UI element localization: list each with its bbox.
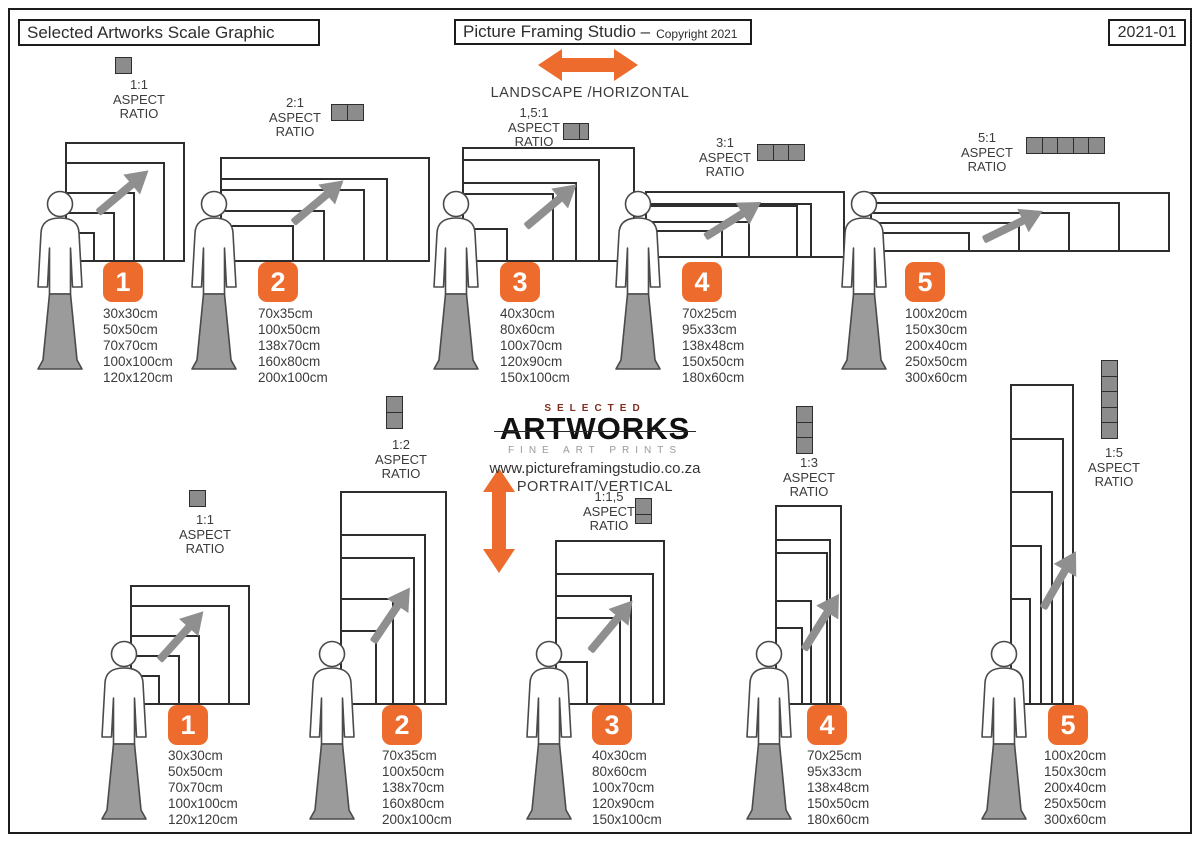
aspect-ratio-label: 5:1ASPECTRATIO [948,131,1026,175]
size-item: 100x70cm [592,780,662,796]
aspect-ratio-icon [1101,360,1118,439]
aspect-ratio-label-line: 1:2 [362,438,440,453]
size-item: 100x20cm [905,306,967,322]
size-item: 30x30cm [103,306,173,322]
size-item: 200x100cm [258,370,328,386]
size-item: 40x30cm [500,306,570,322]
size-item: 80x60cm [592,764,662,780]
size-item: 150x50cm [807,796,869,812]
aspect-ratio-label-line: RATIO [362,467,440,482]
aspect-ratio-label-line: 1:1 [100,78,178,93]
aspect-ratio-label-line: ASPECT [570,505,648,520]
size-item: 120x120cm [103,370,173,386]
size-item: 150x30cm [905,322,967,338]
aspect-ratio-label-line: ASPECT [100,93,178,108]
person-figure [300,640,364,832]
size-item: 30x30cm [168,748,238,764]
number-badge: 3 [592,705,632,745]
aspect-ratio-label-line: 1:1 [166,513,244,528]
aspect-ratio-label-line: ASPECT [256,111,334,126]
aspect-ratio-label: 1:3ASPECTRATIO [770,456,848,500]
copyright-text: Copyright 2021 [656,27,737,41]
size-item: 100x20cm [1044,748,1106,764]
size-item: 70x25cm [807,748,869,764]
aspect-unit-square [1101,407,1118,424]
size-item: 138x70cm [382,780,452,796]
aspect-unit-square [1073,137,1090,154]
aspect-ratio-label-line: RATIO [686,165,764,180]
size-item: 120x120cm [168,812,238,828]
aspect-ratio-label: 1:1ASPECTRATIO [166,513,244,557]
aspect-ratio-icon [1026,137,1105,154]
aspect-ratio-label-line: RATIO [570,519,648,534]
zoom-direction-arrow-icon [88,160,160,222]
aspect-ratio-label: 2:1ASPECTRATIO [256,96,334,140]
size-item: 70x35cm [258,306,328,322]
size-list: 70x25cm95x33cm138x48cm150x50cm180x60cm [682,306,744,386]
logo-subtitle-text: FINE ART PRINTS [470,445,720,456]
size-item: 160x80cm [258,354,328,370]
zoom-direction-arrow-icon [283,170,355,232]
size-list: 30x30cm50x50cm70x70cm100x100cm120x120cm [103,306,173,386]
size-item: 138x48cm [807,780,869,796]
person-figure [28,190,92,382]
number-badge: 5 [1048,705,1088,745]
issue-number-text: 2021-01 [1118,24,1177,42]
size-item: 200x100cm [382,812,452,828]
size-item: 250x50cm [1044,796,1106,812]
person-figure [606,190,670,382]
aspect-ratio-label-line: ASPECT [1075,461,1153,476]
aspect-unit-square [189,490,206,507]
aspect-ratio-label: 3:1ASPECTRATIO [686,136,764,180]
aspect-ratio-label-line: RATIO [100,107,178,122]
page-title-text: Selected Artworks Scale Graphic [27,23,275,43]
aspect-ratio-label-line: RATIO [256,125,334,140]
aspect-unit-square [1101,391,1118,408]
person-figure [424,190,488,382]
aspect-unit-square [347,104,364,121]
size-item: 100x100cm [168,796,238,812]
number-badge: 2 [258,262,298,302]
size-list: 70x35cm100x50cm138x70cm160x80cm200x100cm [258,306,328,386]
size-list: 70x25cm95x33cm138x48cm150x50cm180x60cm [807,748,869,828]
zoom-direction-arrow-icon [142,599,222,670]
aspect-unit-square [796,437,813,454]
aspect-ratio-label-line: RATIO [495,135,573,150]
logo-artworks-text: ARTWORKS [500,414,691,444]
person-figure [517,640,581,832]
size-item: 50x50cm [103,322,173,338]
size-item: 150x100cm [500,370,570,386]
size-item: 70x25cm [682,306,744,322]
number-badge: 1 [103,262,143,302]
aspect-unit-square [1057,137,1074,154]
size-item: 100x70cm [500,338,570,354]
logo-block: SELECTED ARTWORKS FINE ART PRINTS www.pi… [470,403,720,495]
aspect-ratio-label: 1:1ASPECTRATIO [100,78,178,122]
person-figure [92,640,156,832]
studio-title-text: Picture Framing Studio – [463,22,650,42]
size-item: 200x40cm [1044,780,1106,796]
aspect-unit-square [788,144,805,161]
size-item: 50x50cm [168,764,238,780]
size-item: 150x30cm [1044,764,1106,780]
size-item: 200x40cm [905,338,967,354]
size-item: 150x100cm [592,812,662,828]
horizontal-double-arrow-icon [538,48,638,82]
aspect-unit-square [386,412,403,429]
aspect-ratio-label-line: ASPECT [948,146,1026,161]
aspect-ratio-label-line: 1:3 [770,456,848,471]
size-item: 180x60cm [682,370,744,386]
number-badge: 4 [807,705,847,745]
size-list: 40x30cm80x60cm100x70cm120x90cm150x100cm [592,748,662,828]
aspect-half-square [579,123,589,140]
zoom-direction-arrow-icon [571,588,653,662]
logo-strike-line [494,431,697,433]
aspect-ratio-label-line: 1,5:1 [495,106,573,121]
aspect-ratio-label-line: RATIO [166,542,244,557]
size-item: 138x48cm [682,338,744,354]
number-badge: 2 [382,705,422,745]
aspect-unit-square [1026,137,1043,154]
landscape-section-label: LANDSCAPE /HORIZONTAL [470,85,710,101]
size-item: 70x70cm [103,338,173,354]
size-item: 150x50cm [682,354,744,370]
size-list: 100x20cm150x30cm200x40cm250x50cm300x60cm [1044,748,1106,828]
aspect-ratio-icon [115,57,132,74]
size-item: 160x80cm [382,796,452,812]
scale-graphic-canvas: Selected Artworks Scale Graphic Picture … [0,0,1200,842]
aspect-ratio-label-line: ASPECT [770,471,848,486]
size-item: 300x60cm [1044,812,1106,828]
size-item: 70x70cm [168,780,238,796]
aspect-ratio-label-line: 5:1 [948,131,1026,146]
person-figure [972,640,1036,832]
aspect-unit-square [1101,360,1118,377]
person-figure [737,640,801,832]
size-item: 95x33cm [682,322,744,338]
number-badge: 1 [168,705,208,745]
portrait-section-label: PORTRAIT/VERTICAL [470,479,720,495]
aspect-ratio-label-line: 1:5 [1075,446,1153,461]
size-list: 30x30cm50x50cm70x70cm100x100cm120x120cm [168,748,238,828]
size-item: 80x60cm [500,322,570,338]
size-item: 100x50cm [258,322,328,338]
aspect-unit-square [1042,137,1059,154]
person-figure [832,190,896,382]
size-item: 100x100cm [103,354,173,370]
aspect-ratio-label-line: RATIO [770,485,848,500]
number-badge: 4 [682,262,722,302]
aspect-ratio-label: 1:2ASPECTRATIO [362,438,440,482]
size-item: 40x30cm [592,748,662,764]
person-figure [182,190,246,382]
aspect-unit-square [1101,376,1118,393]
aspect-ratio-label-line: RATIO [1075,475,1153,490]
size-list: 40x30cm80x60cm100x70cm120x90cm150x100cm [500,306,570,386]
size-item: 120x90cm [592,796,662,812]
size-item: 100x50cm [382,764,452,780]
aspect-ratio-label-line: ASPECT [686,151,764,166]
number-badge: 3 [500,262,540,302]
aspect-ratio-icon [331,104,364,121]
size-item: 70x35cm [382,748,452,764]
number-badge: 5 [905,262,945,302]
size-item: 180x60cm [807,812,869,828]
aspect-ratio-label: 1:1,5ASPECTRATIO [570,490,648,534]
aspect-unit-square [1101,422,1118,439]
aspect-ratio-label-line: RATIO [948,160,1026,175]
size-item: 250x50cm [905,354,967,370]
aspect-ratio-label: 1,5:1ASPECTRATIO [495,106,573,150]
aspect-ratio-label-line: 3:1 [686,136,764,151]
zoom-direction-arrow-icon [694,183,774,254]
aspect-unit-square [115,57,132,74]
aspect-unit-square [773,144,790,161]
zoom-direction-arrow-icon [516,174,588,236]
aspect-ratio-icon [386,396,403,429]
aspect-unit-square [796,422,813,439]
size-item: 95x33cm [807,764,869,780]
aspect-unit-square [386,396,403,413]
studio-title: Picture Framing Studio – Copyright 2021 [454,19,752,45]
size-list: 100x20cm150x30cm200x40cm250x50cm300x60cm [905,306,967,386]
aspect-unit-square [1088,137,1105,154]
issue-number: 2021-01 [1108,19,1186,46]
aspect-ratio-label: 1:5ASPECTRATIO [1075,446,1153,490]
aspect-unit-square [796,406,813,423]
aspect-ratio-icon [757,144,805,161]
page-title: Selected Artworks Scale Graphic [18,19,320,46]
website-text: www.pictureframingstudio.co.za [470,460,720,477]
size-item: 300x60cm [905,370,967,386]
size-list: 70x35cm100x50cm138x70cm160x80cm200x100cm [382,748,452,828]
aspect-ratio-label-line: ASPECT [495,121,573,136]
aspect-ratio-label-line: ASPECT [362,453,440,468]
aspect-ratio-label-line: ASPECT [166,528,244,543]
size-item: 120x90cm [500,354,570,370]
size-item: 138x70cm [258,338,328,354]
aspect-ratio-icon [189,490,206,507]
aspect-ratio-label-line: 2:1 [256,96,334,111]
aspect-ratio-icon [796,406,813,454]
